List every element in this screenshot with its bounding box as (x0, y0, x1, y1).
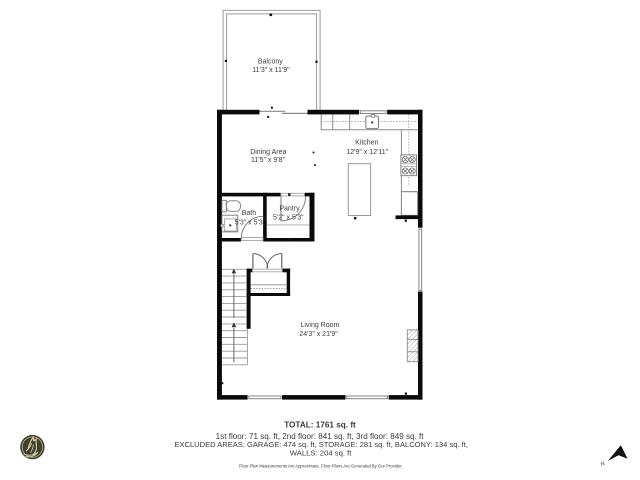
svg-text:Living Room: Living Room (300, 322, 339, 329)
svg-text:Balcony: Balcony (258, 59, 283, 66)
svg-text:WALLS: 204 sq. ft: WALLS: 204 sq. ft (290, 449, 353, 458)
svg-text:5'2" x 5'3": 5'2" x 5'3" (273, 214, 304, 221)
svg-text:11'5" x 9'8": 11'5" x 9'8" (251, 157, 285, 164)
svg-text:Bath: Bath (242, 210, 257, 217)
svg-text:Kitchen: Kitchen (355, 140, 378, 147)
svg-text:TOTAL: 1761 sq. ft: TOTAL: 1761 sq. ft (284, 421, 356, 430)
svg-text:24'3" x 21'9": 24'3" x 21'9" (299, 331, 338, 338)
svg-text:Dining Area: Dining Area (250, 149, 286, 156)
svg-text:12'9" x 12'11": 12'9" x 12'11" (346, 149, 388, 156)
svg-text:Pantry: Pantry (279, 206, 300, 213)
svg-text:Floor Plan Measurements Are Ap: Floor Plan Measurements Are Approximate.… (239, 463, 403, 468)
svg-text:5'3" x 5'3": 5'3" x 5'3" (235, 219, 266, 226)
svg-text:11'3" x 11'9": 11'3" x 11'9" (252, 67, 290, 74)
